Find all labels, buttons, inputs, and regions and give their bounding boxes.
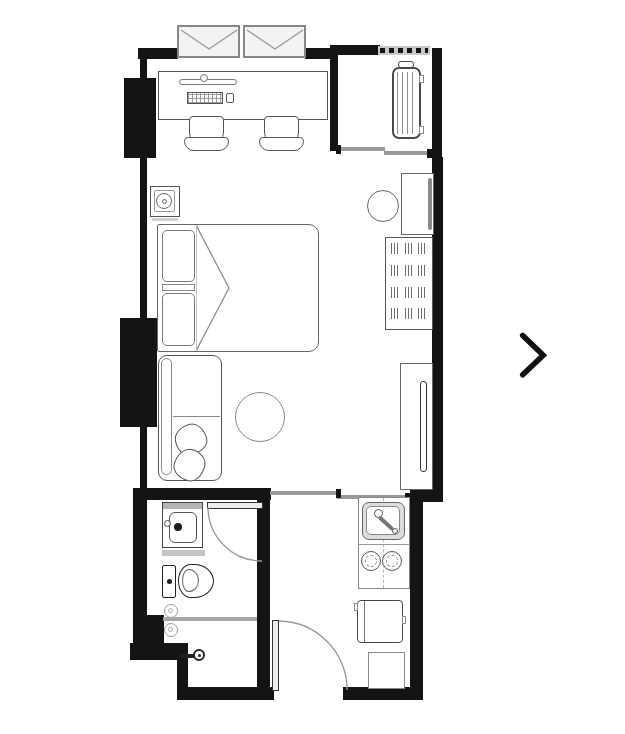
wall-kitchen-right — [410, 500, 423, 700]
chevron-right-icon — [509, 322, 557, 378]
monitor-shelf — [179, 79, 237, 85]
shower-head-dot — [198, 654, 201, 657]
toilet-seat — [182, 569, 199, 592]
wall-bath-block — [133, 615, 164, 645]
sliding-window-panel — [384, 151, 429, 155]
wall-ac-right — [432, 48, 442, 158]
bed-mid-bar — [162, 284, 195, 291]
base-cabinet — [368, 652, 405, 689]
hanging-clothes — [391, 265, 400, 276]
wall-tv — [420, 381, 427, 472]
washbasin — [162, 502, 203, 548]
floor-drain — [164, 604, 178, 618]
wall-shower-left — [177, 643, 188, 695]
hanging-clothes — [405, 243, 414, 254]
ac-unit-bracket — [419, 126, 424, 134]
desk-chair-back — [259, 137, 304, 151]
floor-drain-center — [168, 608, 173, 613]
refrigerator-hinge — [402, 616, 406, 624]
refrigerator-door-line — [364, 601, 365, 642]
hanging-clothes — [405, 308, 414, 319]
flush-button — [167, 579, 172, 584]
sliding-window-cap — [336, 145, 341, 154]
chevron-right-stroke — [523, 335, 544, 374]
carousel-next-button[interactable] — [503, 320, 563, 380]
mouse — [226, 93, 234, 103]
entry-door-swing-arc — [279, 621, 347, 690]
sofa-cushion-divider — [173, 416, 220, 417]
shower-head-icon — [193, 649, 205, 661]
wall-left-c — [140, 427, 147, 489]
bathroom-door-leaf — [207, 502, 263, 509]
refrigerator-hinge — [354, 603, 358, 611]
round-rug — [235, 392, 285, 442]
column-left-lower — [120, 318, 157, 427]
ac-outdoor-unit — [392, 67, 421, 139]
image-carousel-viewport — [0, 0, 625, 734]
nightstand — [150, 186, 180, 217]
sliding-door-cap — [336, 489, 341, 498]
wall-left-a — [140, 48, 147, 79]
hanging-clothes — [418, 287, 427, 298]
lamp-center — [162, 199, 167, 204]
ac-unit-fins — [397, 72, 416, 134]
floor-drain — [164, 623, 178, 637]
sliding-door-cap — [266, 489, 270, 498]
casement-window-left — [177, 25, 240, 58]
sliding-window-panel — [339, 147, 385, 151]
desk-chair-back — [184, 137, 229, 151]
wall-ac-divider — [330, 45, 338, 151]
hanging-clothes — [405, 265, 414, 276]
sliding-window-cap — [427, 149, 433, 158]
kitchen-sink — [362, 502, 405, 540]
bath-shelf — [162, 550, 205, 556]
hanging-clothes — [391, 308, 400, 319]
faucet-tip — [392, 528, 398, 534]
floor-drain-center — [168, 627, 173, 632]
wall-bath-step — [130, 643, 177, 660]
refrigerator — [357, 600, 403, 643]
sofa-backrest — [161, 358, 172, 475]
ventilation-grille-slots — [380, 48, 428, 53]
hanging-clothes — [418, 265, 427, 276]
wardrobe — [385, 237, 433, 330]
stove-burner — [382, 551, 402, 571]
pillow — [162, 230, 195, 282]
keyboard — [187, 92, 223, 104]
wall-bath-left — [133, 488, 147, 618]
column-left-upper — [124, 78, 156, 158]
wall-bath-top — [135, 488, 271, 500]
hanging-clothes — [391, 243, 400, 254]
burner-ring — [365, 555, 377, 567]
hanging-clothes — [405, 287, 414, 298]
entry-door-leaf — [272, 620, 279, 691]
sliding-door-panel — [269, 491, 339, 495]
hanging-clothes — [418, 308, 427, 319]
washbasin-backsplash — [163, 503, 202, 509]
faucet-icon — [164, 520, 171, 527]
bathroom-door-swing-arc — [208, 507, 262, 561]
drain-dot — [174, 523, 182, 531]
stool — [367, 190, 399, 222]
hanging-clothes — [418, 243, 427, 254]
wall-left-b — [140, 158, 147, 319]
wall-bath-right — [257, 500, 270, 690]
burner-ring — [386, 555, 398, 567]
shower-glass-partition — [163, 617, 257, 621]
toilet-bowl — [178, 564, 214, 598]
shelf-knob — [200, 74, 208, 82]
hanging-clothes — [391, 287, 400, 298]
wall-mirror — [428, 178, 432, 230]
ventilation-grille — [378, 46, 430, 55]
tv-console — [400, 363, 433, 490]
ac-unit-bracket — [419, 75, 424, 83]
wall-top-mid — [305, 48, 331, 59]
pillow — [162, 293, 195, 346]
ac-unit-cap — [398, 61, 414, 68]
casement-window-right — [243, 25, 306, 58]
nightstand-shadow — [152, 218, 178, 221]
counter-divider — [358, 544, 410, 545]
stove-burner — [361, 551, 381, 571]
toilet-tank — [162, 565, 176, 598]
